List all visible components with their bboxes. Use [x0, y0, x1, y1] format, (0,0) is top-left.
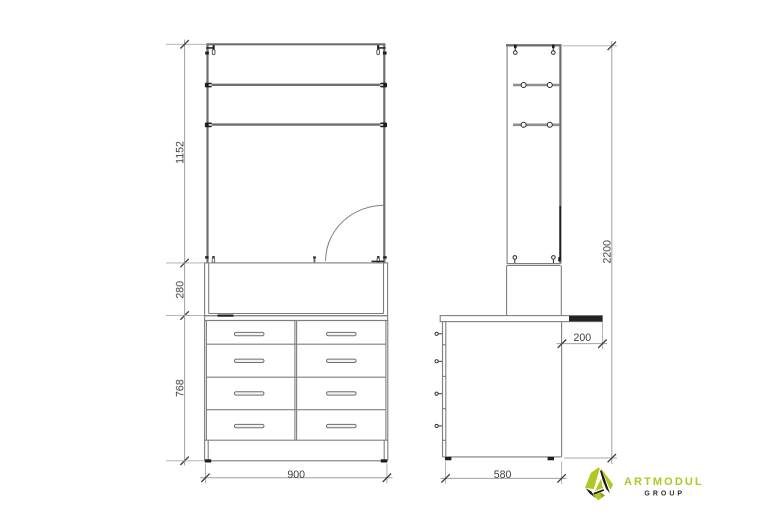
svg-text:768: 768 [174, 379, 186, 397]
svg-text:GROUP: GROUP [644, 490, 685, 497]
svg-text:200: 200 [573, 332, 591, 344]
svg-text:ARTMODUL: ARTMODUL [624, 476, 704, 488]
svg-text:1152: 1152 [174, 141, 186, 164]
svg-text:900: 900 [287, 469, 305, 481]
svg-text:580: 580 [494, 469, 512, 481]
svg-text:2200: 2200 [602, 240, 614, 264]
